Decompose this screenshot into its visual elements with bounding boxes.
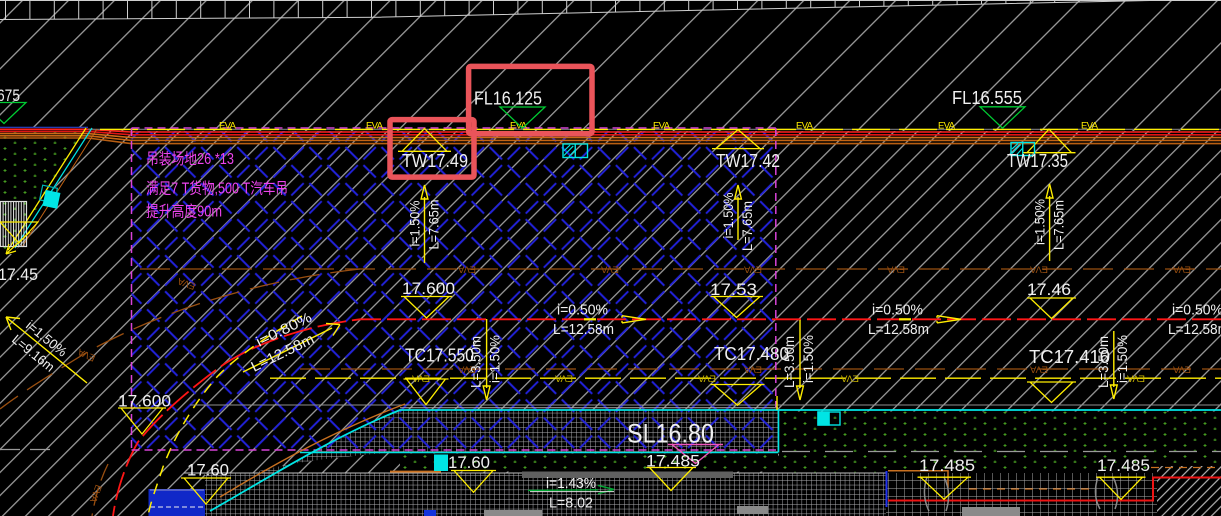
svg-text:TW17.35: TW17.35 [1007,151,1068,171]
svg-text:EVA: EVA [1081,120,1099,131]
svg-text:EVA: EVA [366,120,384,131]
svg-text:i=0.50%: i=0.50% [872,303,923,319]
svg-text:SL16.80: SL16.80 [627,419,714,449]
svg-text:i=1.50%: i=1.50% [801,335,816,383]
svg-text:EVA: EVA [1172,264,1191,275]
svg-text:EVA: EVA [653,120,671,131]
svg-text:L=3.50m: L=3.50m [1096,336,1111,388]
svg-text:FL16.125: FL16.125 [474,89,542,109]
svg-text:EVA: EVA [743,264,762,275]
svg-text:17.45: 17.45 [0,265,38,284]
svg-text:FL16.555: FL16.555 [952,88,1022,108]
svg-text:17.46: 17.46 [1027,280,1071,299]
svg-text:提升高度90m: 提升高度90m [146,203,222,221]
svg-text:TW17.42: TW17.42 [716,151,780,171]
svg-text:吊装场地26 *13: 吊装场地26 *13 [146,150,234,168]
svg-text:EVA: EVA [600,264,619,275]
svg-text:EVA: EVA [886,264,905,275]
svg-text:17.60: 17.60 [187,461,229,480]
svg-text:17.600: 17.600 [118,392,171,411]
svg-text:EVA: EVA [219,120,237,131]
svg-text:L=12.58m: L=12.58m [868,322,929,338]
svg-text:L=7.65m: L=7.65m [427,200,442,250]
svg-text:i=1.50%: i=1.50% [488,335,503,383]
svg-text:17.600: 17.600 [402,279,455,298]
svg-text:L=7.65m: L=7.65m [1052,200,1067,250]
svg-text:EVA: EVA [411,373,430,384]
svg-text:675: 675 [0,86,20,105]
svg-text:EVA: EVA [554,373,573,384]
svg-text:EVA: EVA [457,264,476,275]
svg-text:L=7.65m: L=7.65m [740,201,755,251]
svg-text:17.53: 17.53 [710,280,757,299]
svg-text:L=8.02: L=8.02 [549,496,593,512]
svg-text:EVA: EVA [840,373,859,384]
svg-text:L=12.58m: L=12.58m [1168,322,1221,338]
svg-text:TC17.550: TC17.550 [405,346,474,366]
svg-text:EVA: EVA [796,120,814,131]
svg-text:EVA: EVA [1029,264,1048,275]
svg-text:EVA: EVA [697,373,716,384]
svg-text:i=1.50%: i=1.50% [1033,199,1048,245]
svg-text:i=1.50%: i=1.50% [408,201,423,247]
svg-text:L=3.50m: L=3.50m [469,336,484,388]
svg-text:EVA: EVA [938,120,956,131]
svg-text:TW17.49: TW17.49 [402,151,468,171]
svg-text:i=1.50%: i=1.50% [1115,335,1130,383]
svg-text:17.485: 17.485 [646,452,700,471]
svg-text:i=1.50%: i=1.50% [721,193,736,239]
svg-text:i=1.43%: i=1.43% [546,476,596,492]
svg-text:EVA: EVA [743,364,762,375]
svg-text:L=3.50m: L=3.50m [782,336,797,388]
svg-text:17.485: 17.485 [919,456,975,475]
svg-text:L=12.58m: L=12.58m [553,322,614,338]
svg-text:17.60: 17.60 [448,453,490,472]
svg-text:EVA: EVA [1172,364,1191,375]
svg-text:17.485: 17.485 [1097,456,1150,475]
svg-text:i=0.50%: i=0.50% [557,303,608,319]
svg-text:满足7 T货物,500 T汽车吊: 满足7 T货物,500 T汽车吊 [146,180,288,198]
svg-text:i=0.50%: i=0.50% [1172,303,1221,319]
svg-text:TC17.480: TC17.480 [714,344,789,364]
